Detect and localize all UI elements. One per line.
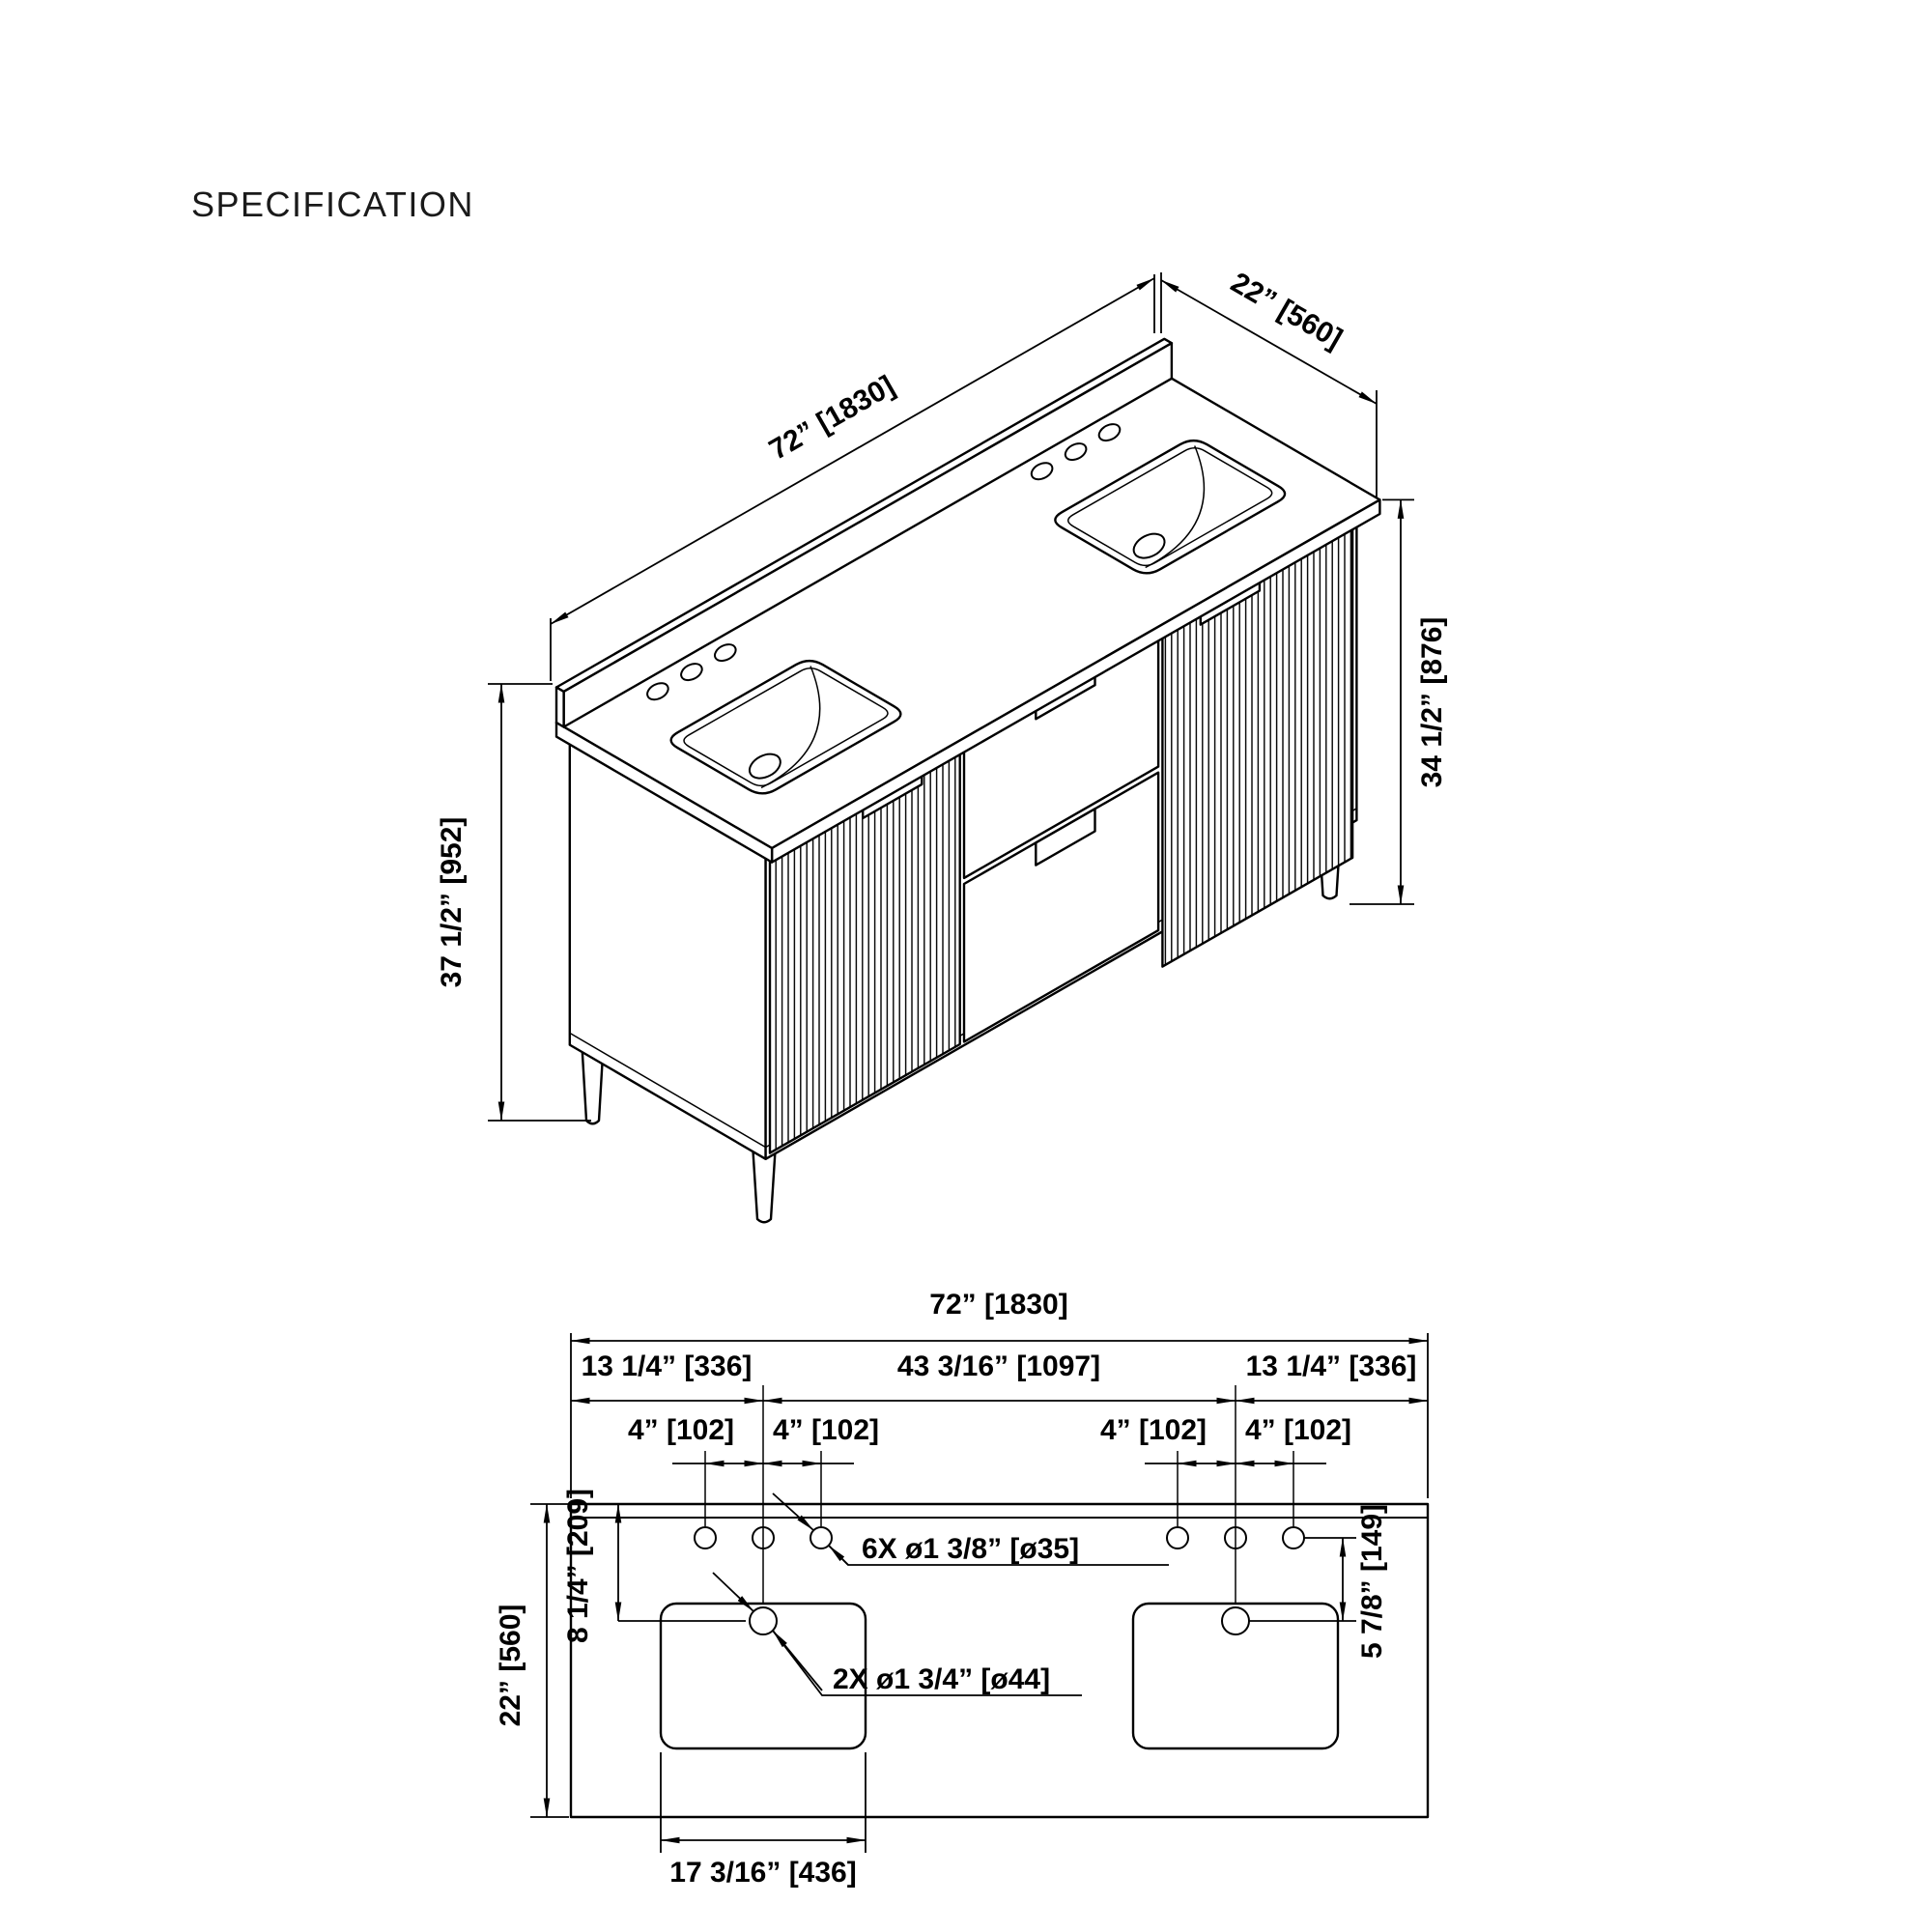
plan-offsets-dimension-row: 13 1/4” [336] 43 3/16” [1097] 13 1/4” [3… (571, 1350, 1428, 1401)
iso-total-height-label: 37 1/2” [952] (436, 817, 468, 988)
page-title: SPECIFICATION (191, 185, 474, 224)
plan-holes-to-drain-label: 5 7/8” [149] (1356, 1504, 1388, 1659)
plan-hole-spacing-label-2: 4” [102] (773, 1414, 879, 1446)
plan-hole-spacing-label-1: 4” [102] (628, 1414, 734, 1446)
plan-back-to-drain-label: 8 1/4” [209] (562, 1489, 594, 1643)
plan-depth-dimension: 22” [560] (495, 1504, 569, 1817)
plan-right-offset-label: 13 1/4” [336] (1246, 1350, 1417, 1382)
plan-faucet-spacing-dimensions: 4” [102] 4” [102] 4” [102] 4” [102] (628, 1414, 1351, 1463)
iso-counter-height-label: 34 1/2” [876] (1416, 617, 1448, 788)
iso-total-height-dimension: 37 1/2” [952] (436, 684, 591, 1121)
technical-drawing: SPECIFICATION (0, 0, 1932, 1932)
plan-drain-holes-note: 2X ø1 3/4” [ø44] (833, 1663, 1050, 1695)
plan-hole-spacing-label-3: 4” [102] (1100, 1414, 1207, 1446)
plan-view: 72” [1830] 13 1/4” [336] 43 3/16” [1097]… (495, 1289, 1428, 1889)
plan-overall-width-label: 72” [1830] (929, 1289, 1067, 1321)
plan-hole-spacing-label-4: 4” [102] (1245, 1414, 1351, 1446)
isometric-view: 72” [1830] 22” [560] 34 1/2” [876] 37 1/… (436, 267, 1448, 1222)
plan-overall-width-dimension: 72” [1830] (571, 1289, 1428, 1498)
plan-left-offset-label: 13 1/4” [336] (582, 1350, 753, 1382)
plan-center-span-label: 43 3/16” [1097] (897, 1350, 1100, 1382)
iso-width-label: 72” [1830] (764, 370, 900, 467)
backsplash-left-end (556, 688, 564, 727)
plan-sink-width-label: 17 3/16” [436] (669, 1857, 856, 1889)
iso-depth-label: 22” [560] (1226, 267, 1348, 355)
plan-faucet-holes-note: 6X ø1 3/8” [ø35] (862, 1533, 1079, 1565)
specification-sheet: { "title": "SPECIFICATION", "isometric":… (0, 0, 1932, 1932)
plan-depth-label: 22” [560] (495, 1605, 526, 1727)
iso-counter-height-dimension: 34 1/2” [876] (1350, 499, 1448, 904)
